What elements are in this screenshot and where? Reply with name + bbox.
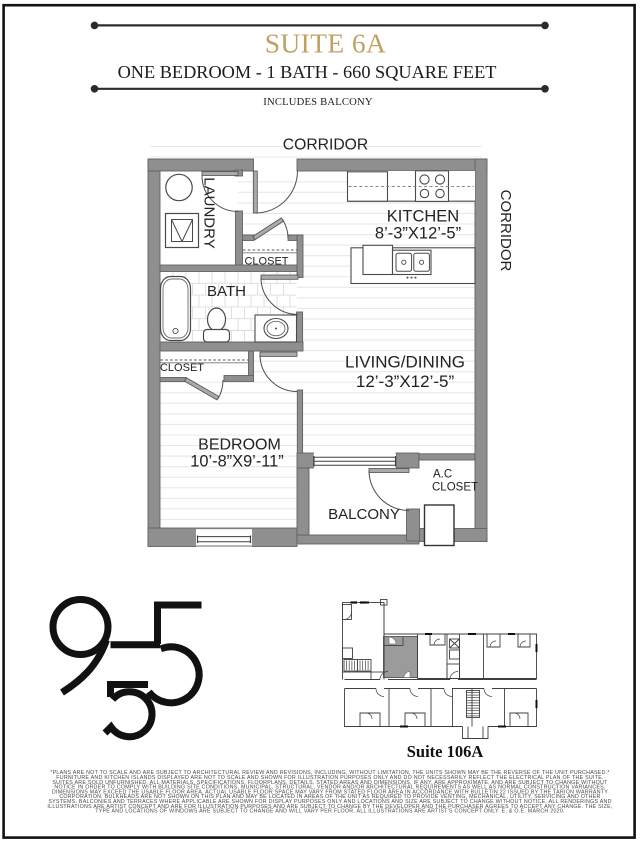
svg-text:8’-3”X12’-5”: 8’-3”X12’-5” (375, 225, 461, 243)
svg-text:INCLUDES BALCONY: INCLUDES BALCONY (263, 97, 373, 108)
svg-text:CLOSET: CLOSET (160, 362, 204, 374)
svg-text:CORRIDOR: CORRIDOR (497, 190, 514, 272)
svg-text:BALCONY: BALCONY (328, 506, 400, 523)
svg-text:CLOSET: CLOSET (432, 482, 478, 494)
svg-text:SUITE 6A: SUITE 6A (265, 27, 387, 58)
svg-text:TYPE AND LOCATIONS OF WINDOWS: TYPE AND LOCATIONS OF WINDOWS ARE SUBJEC… (95, 809, 565, 815)
svg-text:BATH: BATH (207, 283, 246, 300)
svg-text:Suite 106A: Suite 106A (407, 742, 484, 761)
svg-text:ONE BEDROOM - 1 BATH - 660 SQU: ONE BEDROOM - 1 BATH - 660 SQUARE FEET (118, 62, 497, 82)
svg-text:10’-8”X9’-11”: 10’-8”X9’-11” (190, 453, 284, 471)
svg-text:BEDROOM: BEDROOM (198, 437, 281, 454)
svg-text:12’-3”X12’-5”: 12’-3”X12’-5” (356, 372, 455, 391)
svg-text:A.C: A.C (433, 469, 452, 481)
svg-text:CLOSET: CLOSET (244, 256, 288, 268)
svg-text:LAUNDRY: LAUNDRY (201, 177, 218, 248)
svg-text:CORRIDOR: CORRIDOR (283, 137, 368, 154)
svg-text:LIVING/DINING: LIVING/DINING (345, 353, 465, 372)
svg-text:KITCHEN: KITCHEN (387, 208, 459, 226)
